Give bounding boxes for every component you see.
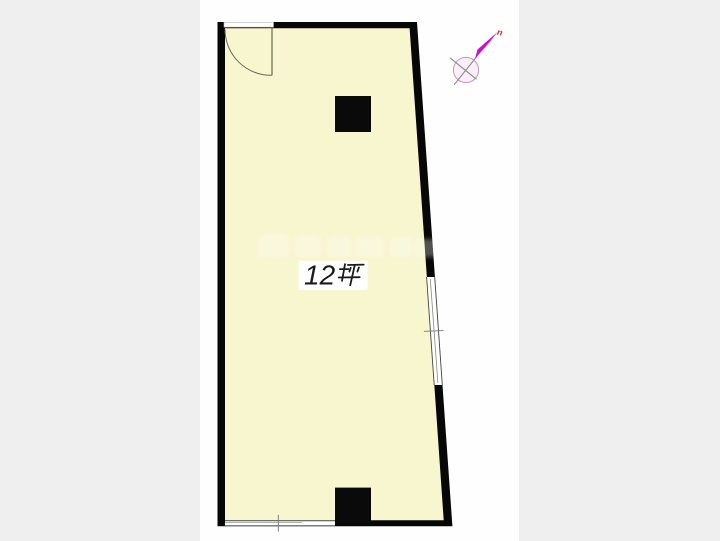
svg-text:12: 12 — [304, 260, 336, 291]
